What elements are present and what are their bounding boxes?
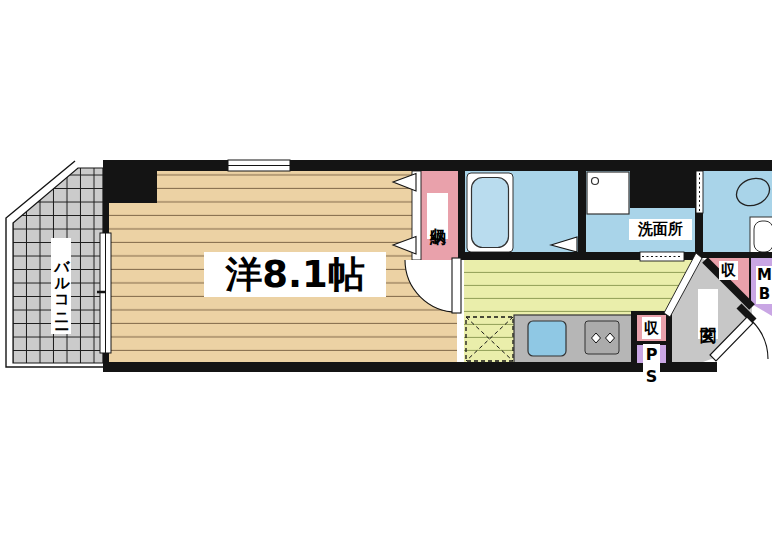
wall-pillar [103,160,157,203]
kitchen-sink-icon [528,321,566,356]
toilet-door-icon [696,171,703,213]
balcony-label: バルコニー [51,238,71,334]
hall-storage-label: 収 [719,261,738,280]
gas-stove-icon [585,321,619,354]
meter-box-label: MB [756,266,772,304]
kitchen-floor [464,260,698,315]
closet-label: 収納 [427,193,448,239]
kitchen-counter [514,315,632,363]
wall-duct-block [630,162,696,208]
floorplan-canvas: バルコニー 洋8.1帖 収納 洗面所 玄関 収 収 PS MB [0,0,772,557]
main-room-label: 洋8.1帖 [204,252,386,297]
window-icon [228,160,290,171]
sliding-door-icon [640,252,684,261]
bathroom [465,170,578,252]
washroom-label: 洗面所 [629,219,692,240]
kitchen-storage-label: 収 [642,317,661,339]
toilet-room [703,166,772,255]
washing-machine-pan-icon [587,172,629,214]
bathtub-icon [467,173,513,252]
entrance-label: 玄関 [698,289,718,339]
pipe-space-label: PS [643,344,660,388]
floorplan-drawing [0,0,772,557]
